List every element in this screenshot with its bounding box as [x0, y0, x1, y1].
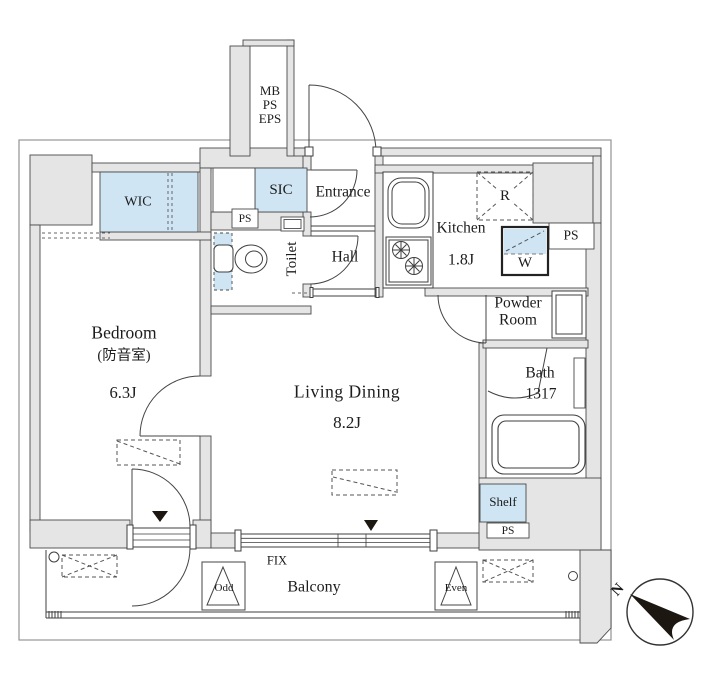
drain-circle	[569, 572, 578, 581]
bath-label: Bath	[525, 366, 554, 383]
window-jamb	[235, 530, 241, 551]
balcony-hatch-left	[62, 555, 117, 577]
bath-size-label: 1317	[526, 387, 557, 404]
hall-sill-line	[312, 289, 378, 296]
north-arrow-icon	[627, 579, 693, 645]
hall-label: Hall	[332, 250, 359, 267]
pipe-space-entry-label: PS	[239, 213, 252, 225]
powder-room-door-arc	[438, 295, 486, 343]
fix-window-label: FIX	[267, 554, 287, 568]
shelf-label: Shelf	[489, 495, 516, 509]
toilet-label: Toilet	[284, 242, 300, 277]
pipe-space-bottom-label: PS	[502, 525, 515, 537]
bedroom-note-label: (防音室)	[97, 349, 150, 365]
odd-label: Odd	[215, 583, 234, 595]
toilet-fixture	[214, 245, 267, 273]
balcony-label: Balcony	[287, 578, 340, 595]
sic-label: SIC	[269, 182, 292, 198]
drain-circle	[49, 552, 59, 562]
bedroom-balcony-door-arc-outer	[132, 548, 190, 606]
bedroom-furniture-outline	[117, 440, 180, 465]
bath-counter	[574, 358, 585, 408]
door-jamb	[305, 147, 313, 156]
entrance-door-arc	[309, 85, 376, 152]
bedroom-label: Bedroom	[91, 324, 156, 343]
entrance-step-line	[311, 226, 375, 231]
window-jamb	[127, 525, 133, 549]
living-window-frame	[238, 534, 433, 547]
floor-plan: MBPSEPS WIC SIC PS Entrance Toilet Hall …	[0, 0, 709, 698]
living-dining-label: Living Dining	[294, 383, 400, 402]
wic-label: WIC	[124, 194, 151, 209]
window-jamb	[430, 530, 437, 551]
living-dining-area-label: 8.2J	[333, 414, 361, 432]
balcony-hatch-right	[483, 560, 533, 582]
door-jamb	[373, 147, 381, 156]
entrance-label: Entrance	[315, 185, 370, 202]
kitchen-area-label: 1.8J	[448, 251, 474, 268]
window-jamb	[190, 525, 196, 549]
window-marker-icon	[152, 511, 168, 522]
shaft-label: MBPSEPS	[259, 84, 281, 126]
kitchen-label: Kitchen	[436, 221, 485, 238]
living-furniture-outline	[332, 470, 397, 495]
bedroom-area-label: 6.3J	[109, 384, 136, 402]
window-marker-icon	[364, 520, 378, 531]
sic-open-area	[213, 168, 255, 212]
fridge-label: R	[498, 188, 512, 204]
even-label: Even	[445, 583, 468, 595]
balcony-side-wall	[580, 550, 611, 643]
powder-room-label: PowderRoom	[494, 295, 541, 328]
washer-label: W	[518, 255, 532, 271]
bathtub	[492, 415, 585, 474]
washbasin	[552, 291, 586, 338]
bedroom-balcony-door-frame	[130, 528, 192, 547]
pipe-space-kitchen-label: PS	[563, 229, 578, 244]
bedroom-door-arc	[140, 376, 200, 436]
